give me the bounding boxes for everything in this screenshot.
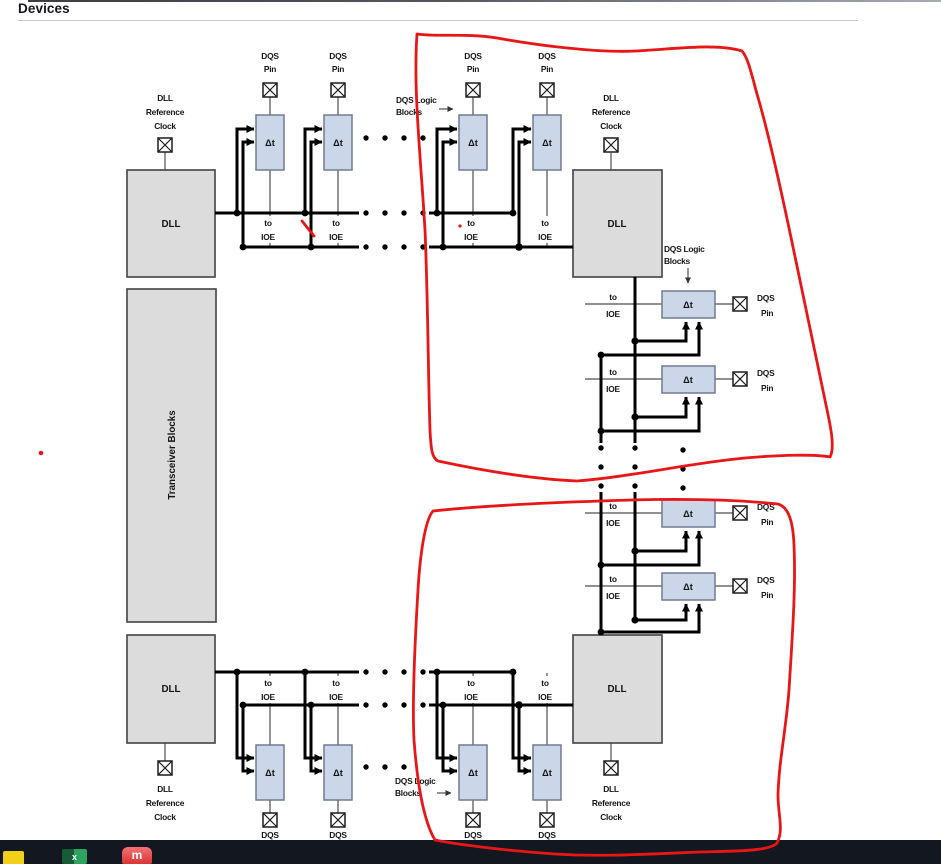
svg-text:DQS: DQS [329,830,347,840]
dll-block-bottom-left: DLL [127,635,215,743]
svg-text:Blocks: Blocks [395,788,422,798]
svg-text:to: to [264,218,272,228]
taskbar: x m [0,840,941,864]
svg-text:to: to [609,292,617,302]
block-diagram: DLL DLL Transceiver Blocks DLL DLL [0,0,941,864]
svg-text:IOE: IOE [329,692,343,702]
svg-text:to: to [541,678,549,688]
dll-label: DLL [161,219,180,230]
svg-text:Reference: Reference [592,107,631,117]
svg-text:Clock: Clock [154,812,176,822]
svg-text:DQS Logic: DQS Logic [396,95,437,105]
svg-text:Pin: Pin [761,590,773,600]
svg-text:Pin: Pin [761,517,773,527]
svg-text:DQS: DQS [757,293,775,303]
svg-text:DQS: DQS [261,51,279,61]
svg-text:Pin: Pin [332,64,344,74]
svg-text:IOE: IOE [261,692,275,702]
svg-text:Δt: Δt [468,138,478,148]
svg-text:DQS: DQS [538,51,556,61]
svg-text:Pin: Pin [541,64,553,74]
document-page: Devices DLL DLL Transceive [0,0,941,864]
svg-text:DLL: DLL [157,93,173,103]
svg-text:Pin: Pin [761,308,773,318]
svg-text:IOE: IOE [606,384,620,394]
dll-label: DLL [607,219,626,230]
delay-control-buses [215,213,635,705]
svg-text:IOE: IOE [329,232,343,242]
transceiver-blocks: Transceiver Blocks [127,289,216,622]
svg-text:DQS: DQS [261,830,279,840]
dll-block-top-left: DLL [127,170,215,277]
svg-text:DLL: DLL [603,93,619,103]
svg-text:IOE: IOE [538,692,552,702]
dll-label: DLL [161,684,180,695]
svg-text:IOE: IOE [261,232,275,242]
svg-text:Δt: Δt [333,768,343,778]
svg-text:Δt: Δt [333,138,343,148]
excel-icon[interactable]: x [62,849,87,864]
svg-text:DQS: DQS [464,830,482,840]
svg-text:DQS: DQS [757,368,775,378]
svg-text:DLL: DLL [157,784,173,794]
media-app-icon[interactable]: m [122,847,152,864]
svg-text:to: to [467,678,475,688]
svg-text:to: to [332,218,340,228]
svg-text:to: to [609,501,617,511]
svg-text:Blocks: Blocks [396,107,423,117]
svg-text:Δt: Δt [683,300,693,310]
junction-dots [234,210,639,709]
svg-text:Δt: Δt [468,768,478,778]
svg-text:IOE: IOE [464,692,478,702]
svg-text:Reference: Reference [146,107,185,117]
dll-block-bottom-right: DLL [573,635,662,743]
svg-text:DQS: DQS [329,51,347,61]
transceiver-label: Transceiver Blocks [167,410,178,500]
svg-text:to: to [264,678,272,688]
svg-text:IOE: IOE [606,309,620,319]
svg-text:IOE: IOE [538,232,552,242]
svg-text:Δt: Δt [542,768,552,778]
svg-text:DQS: DQS [464,51,482,61]
svg-text:Clock: Clock [600,121,622,131]
svg-text:Reference: Reference [592,798,631,808]
svg-text:Δt: Δt [683,375,693,385]
folder-icon[interactable] [3,851,24,864]
svg-text:Pin: Pin [761,383,773,393]
svg-text:to: to [609,367,617,377]
svg-text:Clock: Clock [154,121,176,131]
svg-text:DQS: DQS [538,830,556,840]
svg-text:DLL: DLL [603,784,619,794]
svg-text:Clock: Clock [600,812,622,822]
dll-label: DLL [607,684,626,695]
svg-text:to: to [332,678,340,688]
svg-text:DQS Logic: DQS Logic [664,244,705,254]
svg-text:Pin: Pin [264,64,276,74]
svg-text:Pin: Pin [467,64,479,74]
svg-text:Reference: Reference [146,798,185,808]
dll-block-top-right: DLL [573,170,662,277]
svg-text:IOE: IOE [606,591,620,601]
svg-text:Δt: Δt [683,509,693,519]
svg-text:Δt: Δt [683,582,693,592]
svg-text:Δt: Δt [265,138,275,148]
svg-text:DQS: DQS [757,502,775,512]
svg-text:to: to [541,218,549,228]
svg-text:to: to [609,574,617,584]
svg-text:DQS Logic: DQS Logic [395,776,436,786]
label-halos [258,216,555,703]
svg-text:IOE: IOE [606,518,620,528]
svg-text:Δt: Δt [542,138,552,148]
svg-text:to: to [467,218,475,228]
svg-text:Δt: Δt [265,768,275,778]
svg-text:Blocks: Blocks [664,256,691,266]
svg-text:DQS: DQS [757,575,775,585]
svg-text:IOE: IOE [464,232,478,242]
